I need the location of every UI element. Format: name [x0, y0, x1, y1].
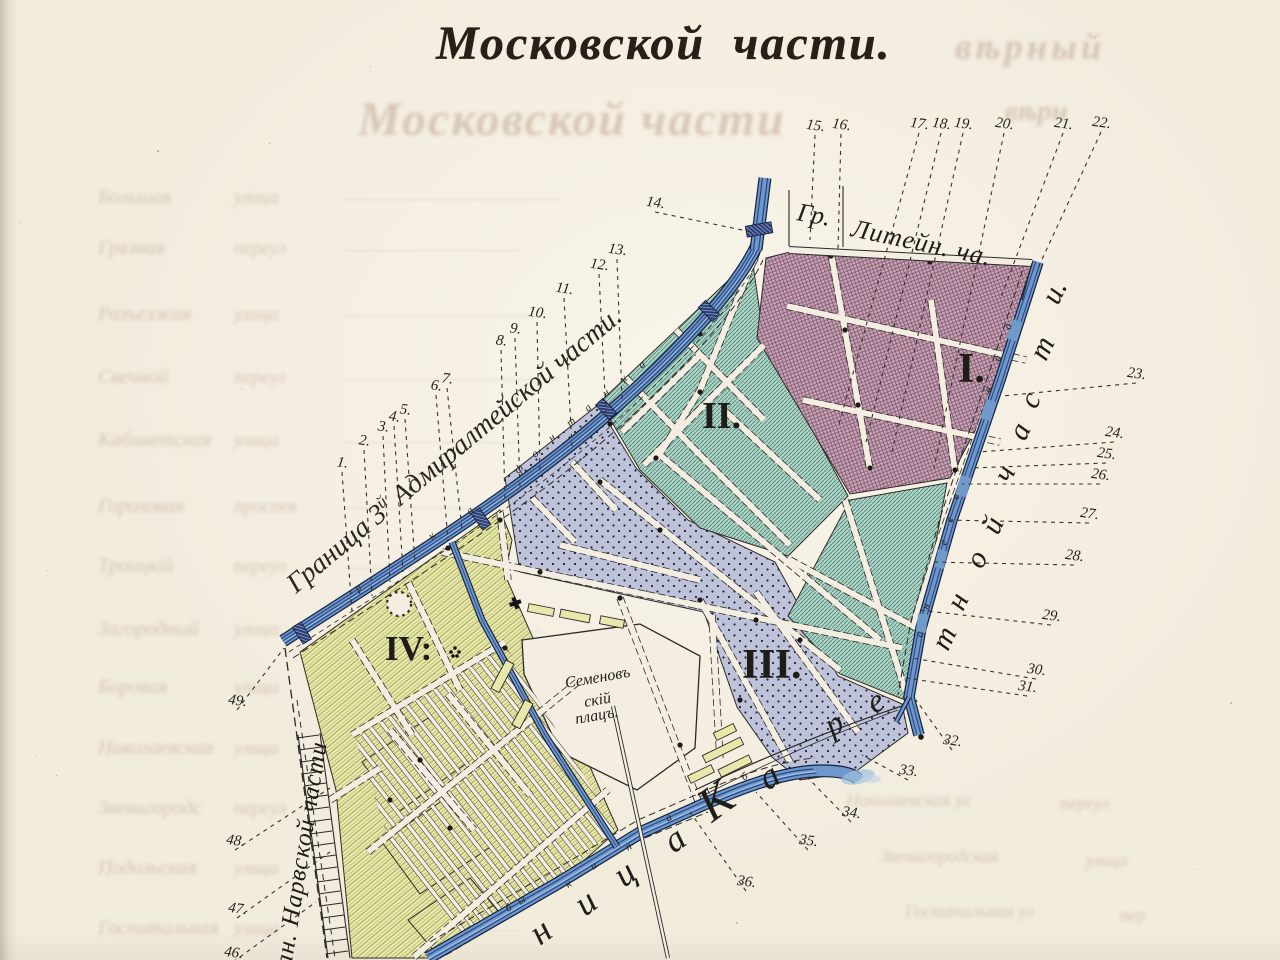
svg-text:12.: 12. [589, 256, 610, 274]
svg-text:18.: 18. [931, 115, 952, 133]
svg-text:28.: 28. [1064, 547, 1085, 565]
svg-text:1.: 1. [336, 454, 349, 471]
svg-text:и: и [566, 881, 604, 924]
svg-text:34.: 34. [840, 804, 862, 823]
svg-text:16.: 16. [831, 116, 852, 134]
svg-text:26.: 26. [1090, 466, 1111, 484]
svg-text:IV:: IV: [385, 629, 432, 668]
svg-text:24.: 24. [1104, 424, 1125, 442]
svg-text:а: а [655, 818, 693, 861]
svg-text:47.: 47. [227, 900, 248, 918]
svg-text:III.: III. [742, 642, 802, 688]
svg-text:I.: I. [958, 346, 985, 392]
svg-text:ц: ц [605, 852, 643, 895]
svg-text:15.: 15. [805, 117, 826, 135]
svg-text:46.: 46. [223, 944, 244, 960]
svg-text:17.: 17. [909, 115, 930, 133]
svg-text:а: а [1001, 417, 1037, 445]
svg-text:20.: 20. [994, 115, 1015, 133]
svg-text:с: с [1012, 387, 1048, 413]
svg-text:30.: 30. [1025, 661, 1047, 680]
svg-text:21.: 21. [1053, 115, 1074, 133]
svg-text:т: т [924, 621, 963, 655]
svg-text:23.: 23. [1126, 365, 1147, 383]
svg-text:35.: 35. [797, 832, 819, 851]
svg-text:31.: 31. [1016, 678, 1038, 697]
svg-text:33.: 33. [897, 762, 919, 781]
svg-text:II.: II. [702, 395, 741, 437]
svg-text:ч: ч [986, 460, 1022, 487]
svg-text:5.: 5. [399, 401, 412, 418]
svg-text:7.: 7. [441, 370, 454, 387]
svg-text:14.: 14. [645, 194, 666, 212]
svg-text:н: н [521, 910, 559, 953]
svg-text:й: й [974, 511, 1010, 539]
svg-text:11.: 11. [555, 280, 575, 298]
svg-text:9.: 9. [509, 320, 522, 337]
svg-text:8.: 8. [495, 332, 508, 349]
svg-text:25.: 25. [1096, 445, 1117, 463]
svg-text:и.: и. [1034, 275, 1073, 309]
svg-text:22.: 22. [1091, 114, 1112, 132]
svg-text:19.: 19. [953, 115, 974, 133]
svg-text:49.: 49. [227, 692, 248, 710]
svg-text:Гр.: Гр. [794, 197, 833, 232]
svg-text:48.: 48. [225, 832, 246, 850]
svg-text:29.: 29. [1041, 607, 1062, 625]
svg-text:2.: 2. [358, 432, 371, 449]
svg-text:10.: 10. [527, 304, 548, 322]
svg-text:т: т [1022, 331, 1061, 365]
svg-text:27.: 27. [1079, 505, 1100, 523]
svg-text:о: о [958, 545, 994, 573]
svg-text:36.: 36. [735, 873, 757, 892]
svg-text:н: н [939, 588, 975, 615]
svg-text:13.: 13. [607, 241, 628, 259]
svg-text:32.: 32. [941, 732, 963, 751]
